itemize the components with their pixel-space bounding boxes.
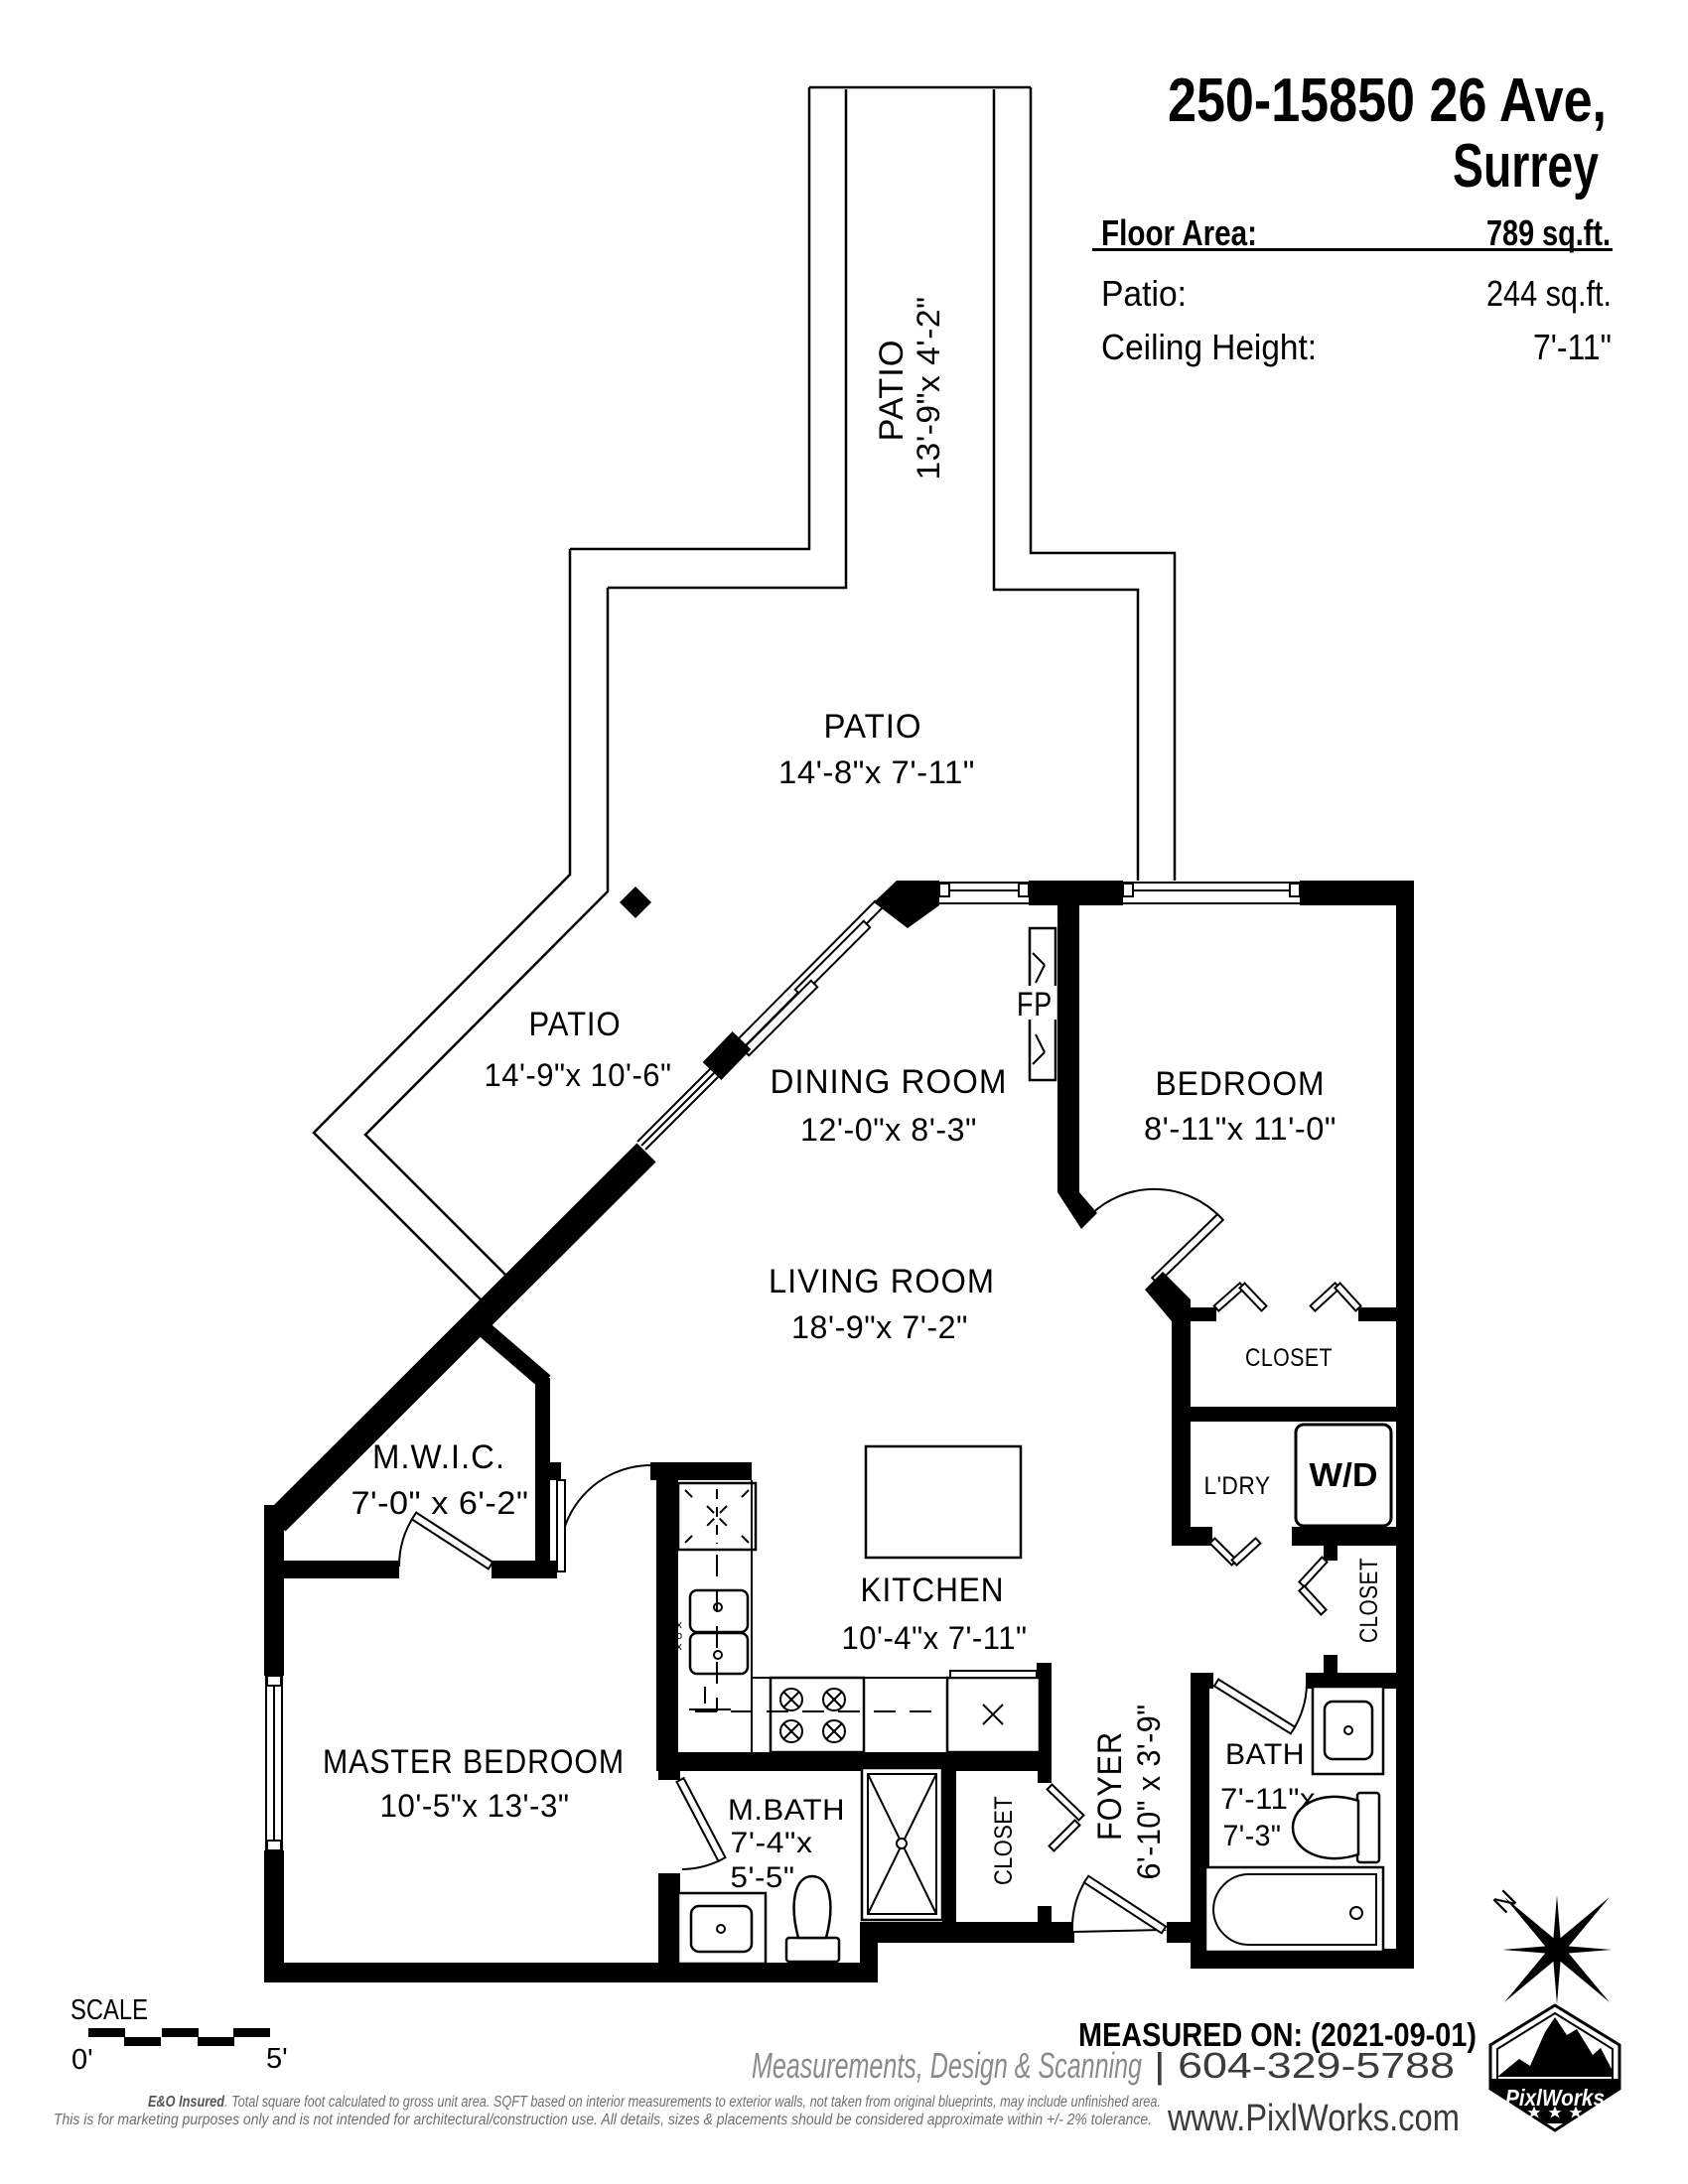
- svg-text:7'-0" x 6'-2": 7'-0" x 6'-2": [352, 1485, 529, 1521]
- svg-text:CLOSET: CLOSET: [1355, 1558, 1383, 1643]
- svg-text:LIVING ROOM: LIVING ROOM: [769, 1263, 995, 1300]
- svg-text:E&O Insured. Total square foo: E&O Insured. Total square foot calculate…: [148, 2094, 1161, 2111]
- svg-text:M.BATH: M.BATH: [728, 1794, 845, 1827]
- svg-text:BATH: BATH: [1225, 1738, 1305, 1771]
- svg-text:BEDROOM: BEDROOM: [1156, 1065, 1326, 1103]
- svg-text:CLOSET: CLOSET: [1245, 1344, 1333, 1372]
- svg-text:x: x: [676, 1641, 682, 1653]
- svg-text:www.PixlWorks.com: www.PixlWorks.com: [1167, 2098, 1460, 2139]
- svg-text:FP: FP: [1017, 986, 1053, 1024]
- svg-text:CLOSET: CLOSET: [990, 1796, 1018, 1885]
- svg-text:7'-3": 7'-3": [1223, 1820, 1282, 1852]
- svg-text:Ceiling Height:: Ceiling Height:: [1101, 327, 1317, 367]
- svg-text:10'-5"x 13'-3": 10'-5"x 13'-3": [380, 1788, 570, 1824]
- svg-text:250-15850 26 Ave,: 250-15850 26 Ave,: [1168, 67, 1607, 135]
- svg-text:PATIO: PATIO: [824, 708, 922, 746]
- svg-text:7'-11": 7'-11": [1533, 327, 1612, 367]
- svg-text:W/D: W/D: [1310, 1456, 1378, 1493]
- svg-text:10'-4"x 7'-11": 10'-4"x 7'-11": [842, 1620, 1028, 1656]
- svg-text:5'-5": 5'-5": [731, 1861, 795, 1894]
- svg-text:| 604-329-5788: | 604-329-5788: [1154, 2045, 1455, 2086]
- svg-text:18'-9"x 7'-2": 18'-9"x 7'-2": [791, 1309, 968, 1345]
- svg-text:7'-4"x: 7'-4"x: [731, 1827, 813, 1859]
- svg-text:6'-10" x 3'-9": 6'-10" x 3'-9": [1131, 1705, 1167, 1880]
- svg-text:13'-9"x 4'-2": 13'-9"x 4'-2": [911, 297, 946, 480]
- svg-text:DINING ROOM: DINING ROOM: [771, 1063, 1008, 1101]
- svg-text:244 sq.ft.: 244 sq.ft.: [1486, 273, 1612, 314]
- svg-text:789 sq.ft.: 789 sq.ft.: [1486, 212, 1611, 253]
- svg-text:FOYER: FOYER: [1091, 1731, 1129, 1841]
- svg-text:Measurements, Design & Scannin: Measurements, Design & Scanning: [752, 2045, 1142, 2086]
- svg-text:5': 5': [266, 2043, 288, 2075]
- svg-text:Surrey: Surrey: [1453, 132, 1599, 201]
- svg-text:Patio:: Patio:: [1101, 273, 1187, 314]
- svg-text:L'DRY: L'DRY: [1204, 1472, 1271, 1500]
- svg-text:PATIO: PATIO: [529, 1006, 622, 1043]
- svg-text:MASTER BEDROOM: MASTER BEDROOM: [323, 1743, 625, 1781]
- svg-text:12'-0"x 8'-3": 12'-0"x 8'-3": [800, 1112, 977, 1148]
- svg-text:8'-11"x 11'-0": 8'-11"x 11'-0": [1144, 1111, 1336, 1147]
- svg-text:Floor Area:: Floor Area:: [1101, 212, 1257, 253]
- svg-text:0': 0': [71, 2044, 93, 2076]
- svg-text:KITCHEN: KITCHEN: [861, 1571, 1005, 1609]
- svg-text:14'-9"x 10'-6": 14'-9"x 10'-6": [485, 1057, 672, 1093]
- svg-text:PATIO: PATIO: [873, 340, 911, 442]
- svg-text:SCALE: SCALE: [70, 1994, 148, 2026]
- svg-text:M.W.I.C.: M.W.I.C.: [372, 1438, 505, 1476]
- svg-text:14'-8"x 7'-11": 14'-8"x 7'-11": [778, 754, 975, 790]
- svg-text:This is for marketing purposes: This is for marketing purposes only and …: [54, 2112, 1152, 2128]
